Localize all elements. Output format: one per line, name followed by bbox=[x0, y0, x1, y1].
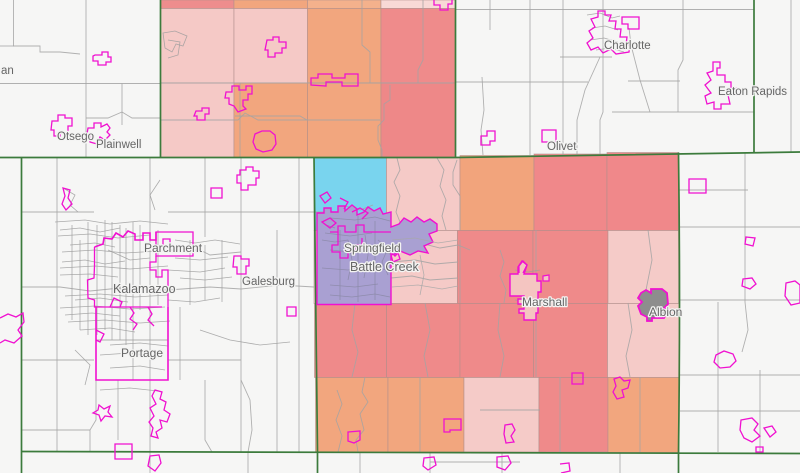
svg-text:Marshall: Marshall bbox=[522, 295, 567, 309]
svg-text:Olivet: Olivet bbox=[547, 141, 577, 153]
svg-text:Parchment: Parchment bbox=[144, 241, 203, 255]
svg-text:Eaton Rapids: Eaton Rapids bbox=[718, 86, 787, 98]
svg-text:Albion: Albion bbox=[649, 305, 682, 319]
svg-text:Springfield: Springfield bbox=[344, 241, 401, 255]
svg-text:Battle Creek: Battle Creek bbox=[350, 260, 420, 274]
svg-text:Galesburg: Galesburg bbox=[242, 276, 295, 288]
svg-text:Portage: Portage bbox=[121, 346, 163, 360]
svg-text:Kalamazoo: Kalamazoo bbox=[113, 282, 176, 296]
svg-text:Charlotte: Charlotte bbox=[604, 40, 651, 52]
svg-text:an: an bbox=[1, 65, 14, 77]
svg-text:Plainwell: Plainwell bbox=[96, 139, 141, 151]
svg-text:Otsego: Otsego bbox=[57, 131, 94, 143]
